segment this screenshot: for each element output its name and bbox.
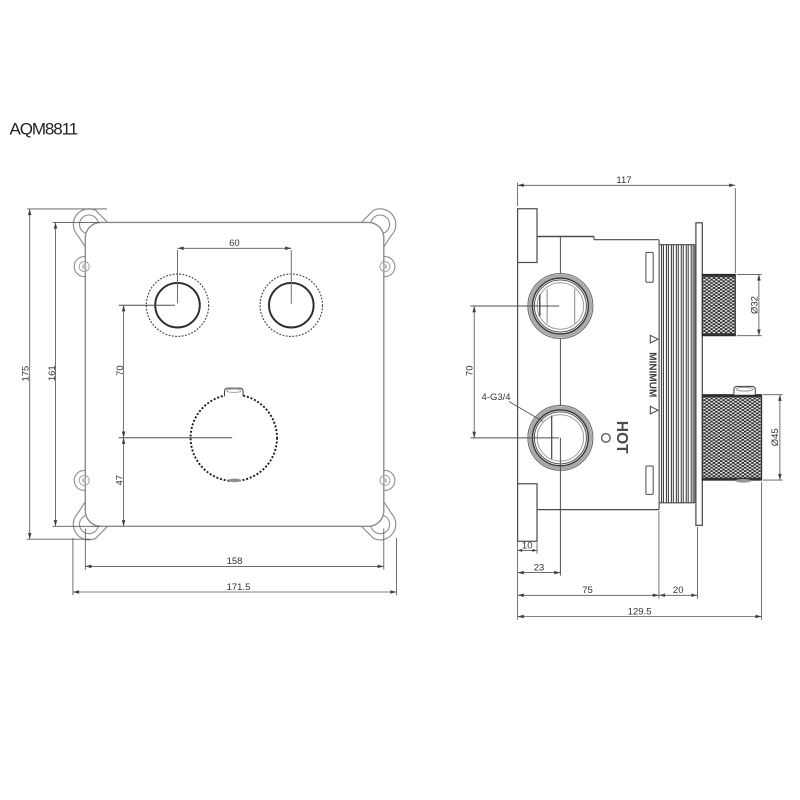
svg-text:171.5: 171.5	[227, 582, 251, 593]
svg-text:175: 175	[20, 366, 31, 382]
svg-text:161: 161	[47, 365, 58, 381]
svg-text:158: 158	[227, 556, 243, 567]
svg-text:75: 75	[582, 585, 593, 596]
svg-text:HOT: HOT	[613, 421, 630, 454]
svg-text:70: 70	[464, 366, 475, 377]
svg-text:70: 70	[115, 365, 126, 376]
svg-text:Ø45: Ø45	[770, 428, 781, 446]
svg-text:23: 23	[534, 562, 545, 573]
svg-text:47: 47	[114, 475, 125, 486]
svg-text:129.5: 129.5	[628, 607, 652, 618]
svg-text:117: 117	[616, 175, 631, 186]
svg-text:AQM8811: AQM8811	[10, 119, 78, 138]
svg-text:4-G3/4: 4-G3/4	[482, 392, 511, 403]
svg-text:20: 20	[673, 585, 684, 596]
svg-text:MINIMUM: MINIMUM	[646, 352, 657, 397]
svg-text:60: 60	[229, 238, 240, 249]
svg-text:10: 10	[522, 541, 533, 552]
svg-text:Ø32: Ø32	[750, 296, 761, 314]
